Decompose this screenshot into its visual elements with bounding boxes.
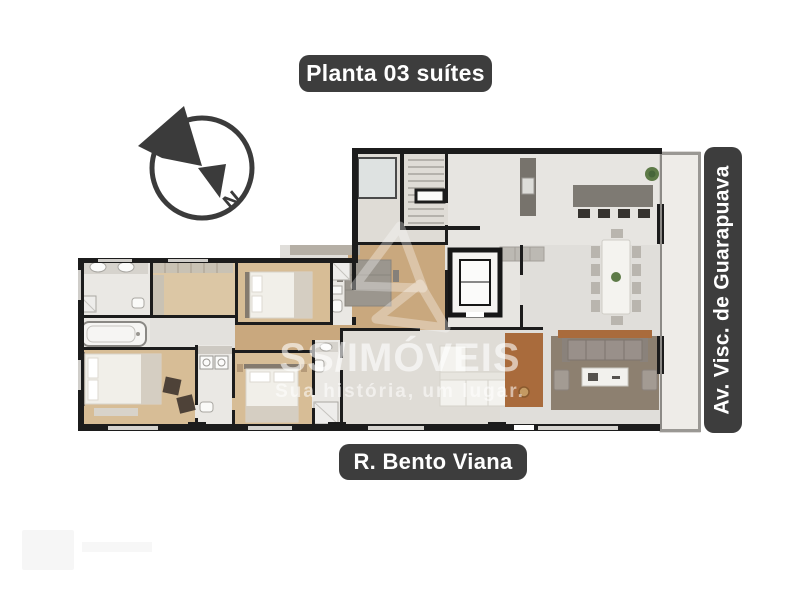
suite-3-bed (245, 272, 312, 318)
floorplan-page: SS/IMÓVEIS Sua história, um lugar. N Pla… (0, 0, 800, 600)
corner-watermark-text (82, 542, 152, 552)
corner-watermark (22, 530, 74, 570)
street-label-right: Av. Visc. de Guarapuava (704, 147, 742, 433)
living-room-furniture (551, 330, 659, 410)
street-label-right-text: Av. Visc. de Guarapuava (711, 165, 735, 414)
title-badge: Planta 03 suítes (299, 55, 492, 92)
suite-2-furniture (237, 364, 307, 422)
compass-needle-head (138, 106, 202, 166)
compass-north-letter: N (218, 186, 246, 215)
street-label-bottom: R. Bento Viana (339, 444, 527, 480)
compass-icon: N (138, 104, 268, 234)
